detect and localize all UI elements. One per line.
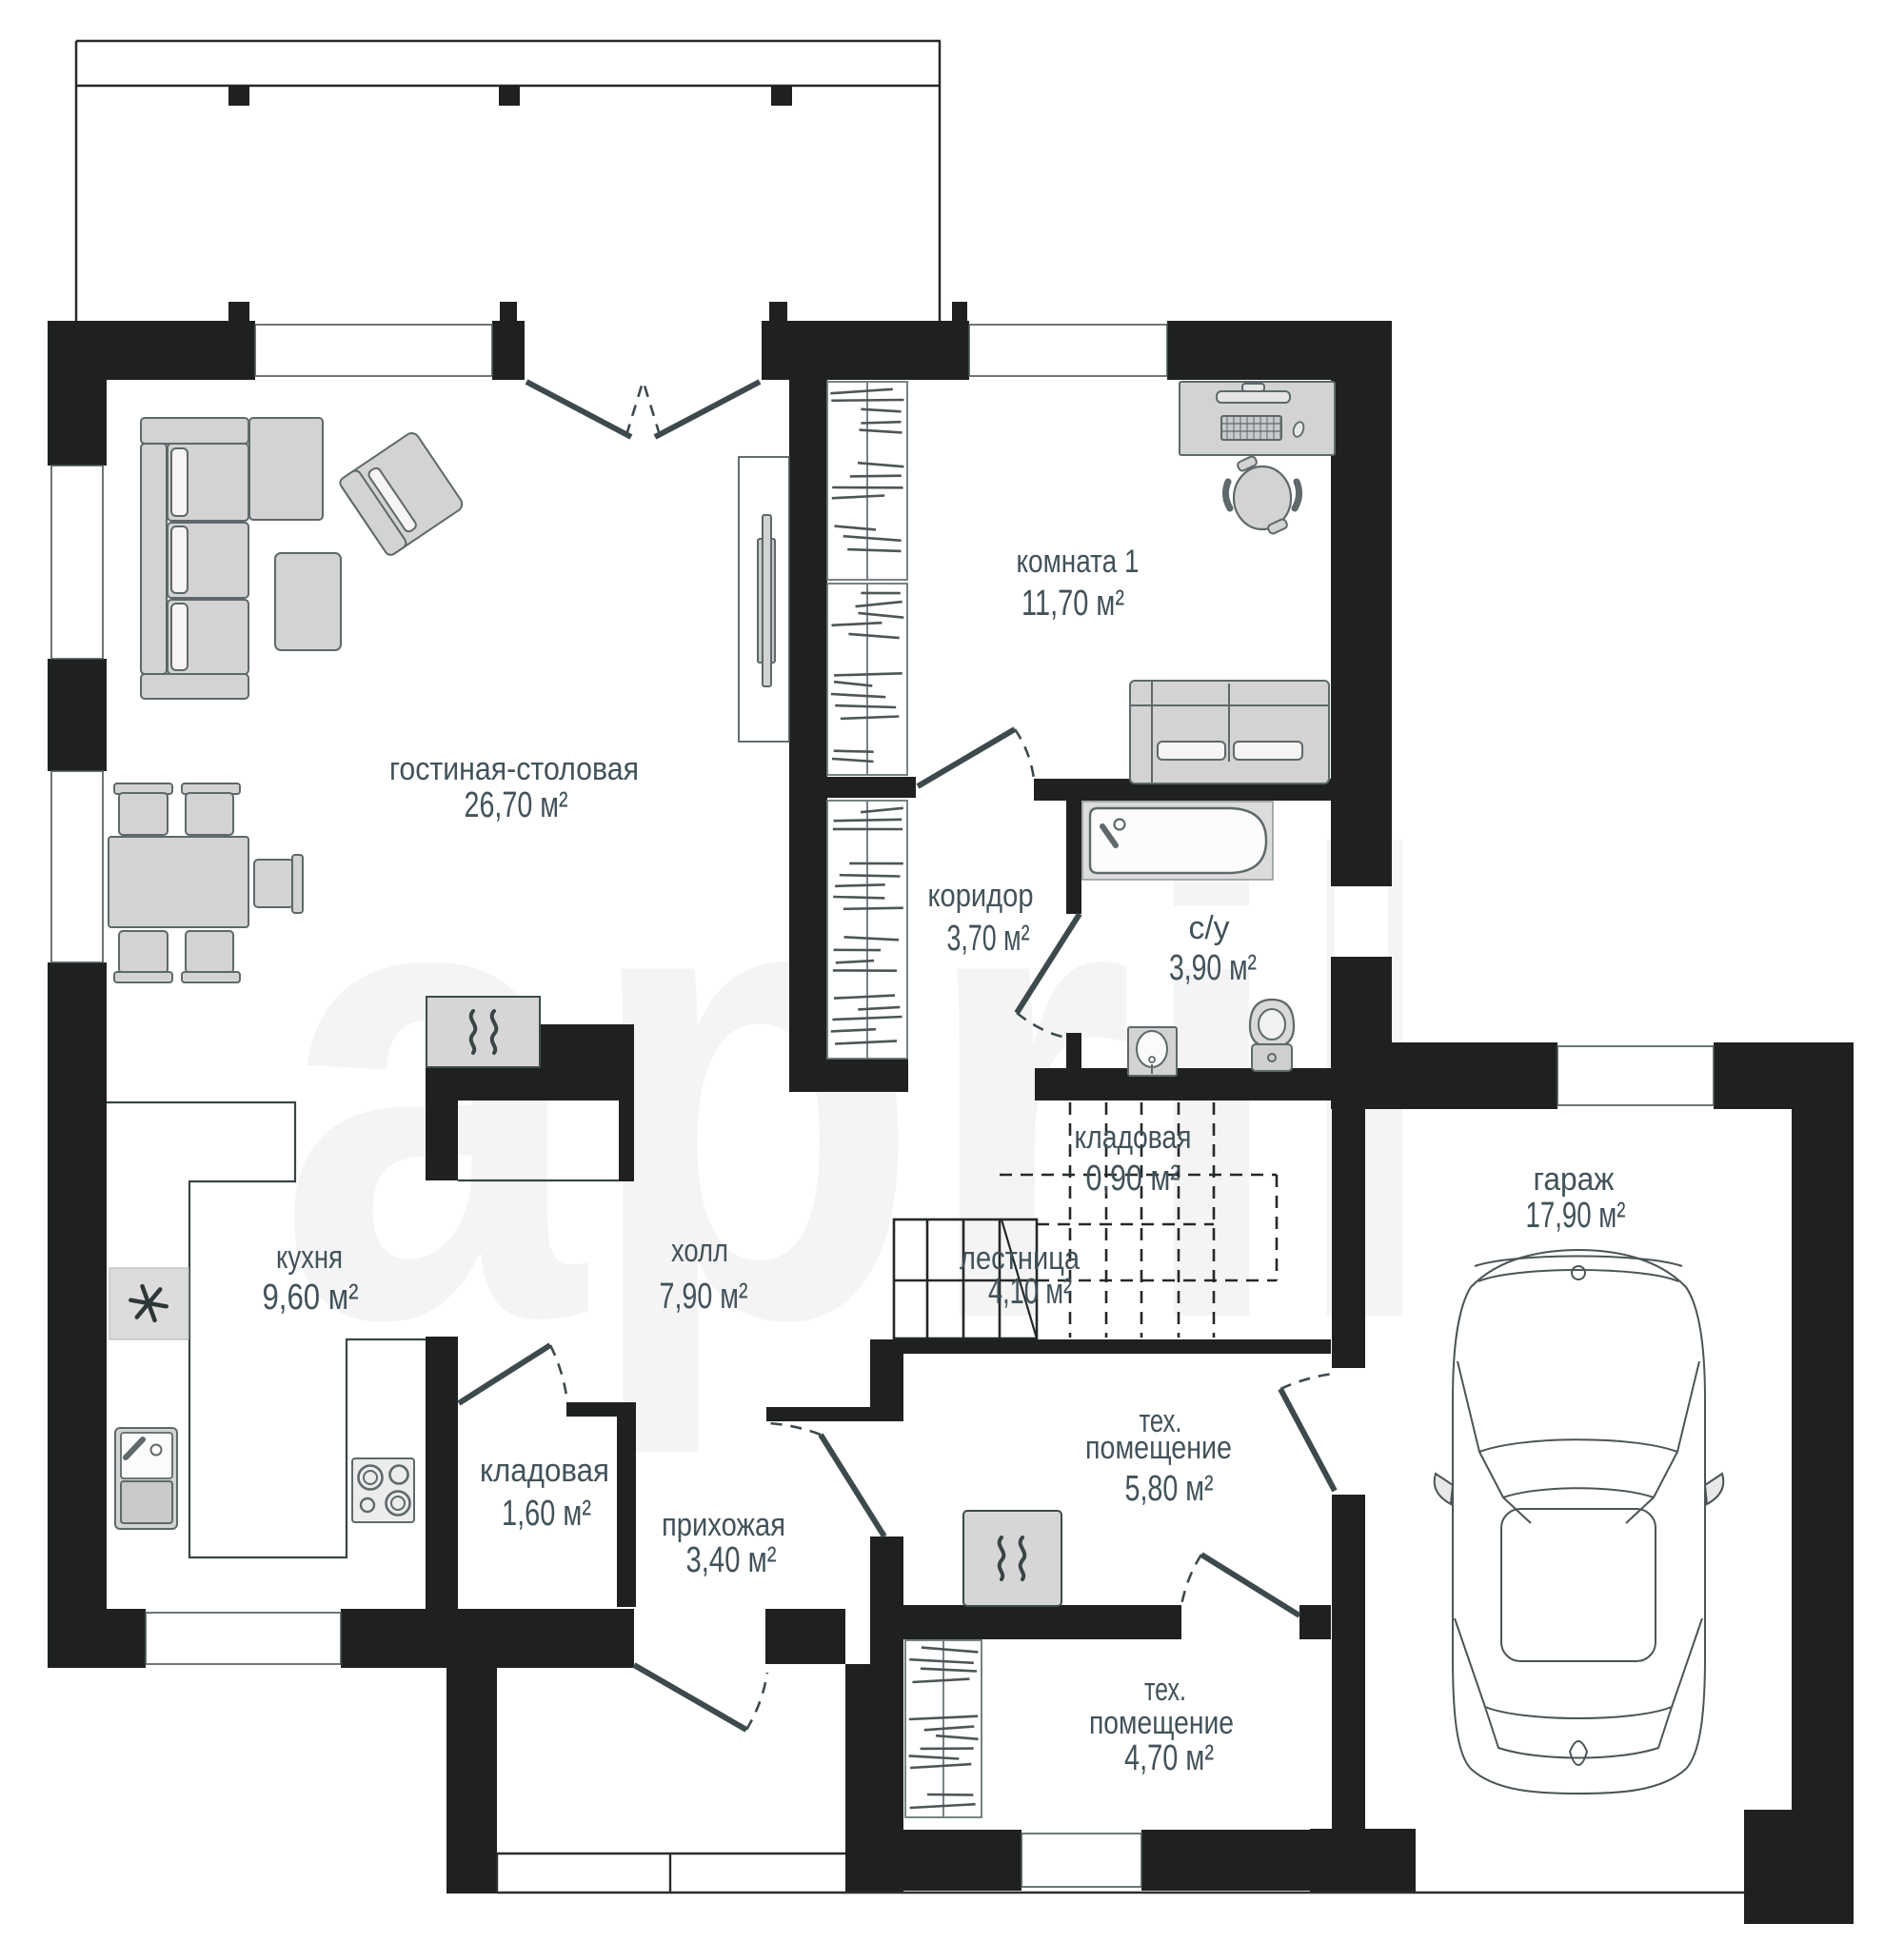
svg-text:кухня: кухня [276,1239,343,1276]
svg-text:комната 1: комната 1 [1017,544,1140,580]
svg-text:тех.: тех. [1144,1672,1186,1708]
svg-text:гостиная-столовая: гостиная-столовая [389,751,639,787]
svg-text:прихожая: прихожая [662,1507,785,1543]
svg-text:11,70 м²: 11,70 м² [1021,584,1124,624]
svg-text:помещение: помещение [1089,1705,1234,1741]
svg-text:кладовая: кладовая [480,1453,609,1489]
svg-text:4,10 м²: 4,10 м² [988,1272,1072,1312]
svg-text:кладовая: кладовая [1075,1120,1192,1156]
svg-text:гараж: гараж [1534,1161,1615,1198]
svg-text:7,90 м²: 7,90 м² [660,1277,748,1317]
svg-text:холл: холл [671,1233,728,1269]
svg-text:9,60 м²: 9,60 м² [263,1278,359,1318]
svg-text:3,90 м²: 3,90 м² [1169,948,1257,988]
svg-text:коридор: коридор [928,878,1034,914]
svg-text:17,90 м²: 17,90 м² [1526,1196,1626,1236]
svg-text:1,60 м²: 1,60 м² [502,1494,591,1534]
svg-text:3,40 м²: 3,40 м² [686,1540,777,1580]
svg-text:3,70 м²: 3,70 м² [947,919,1030,959]
svg-text:4,70 м²: 4,70 м² [1124,1738,1214,1778]
svg-text:помещение: помещение [1085,1430,1232,1466]
svg-text:с/у: с/у [1189,910,1230,946]
svg-text:5,80 м²: 5,80 м² [1125,1469,1214,1509]
svg-text:0,90 м²: 0,90 м² [1086,1159,1180,1199]
svg-text:26,70 м²: 26,70 м² [465,785,568,825]
